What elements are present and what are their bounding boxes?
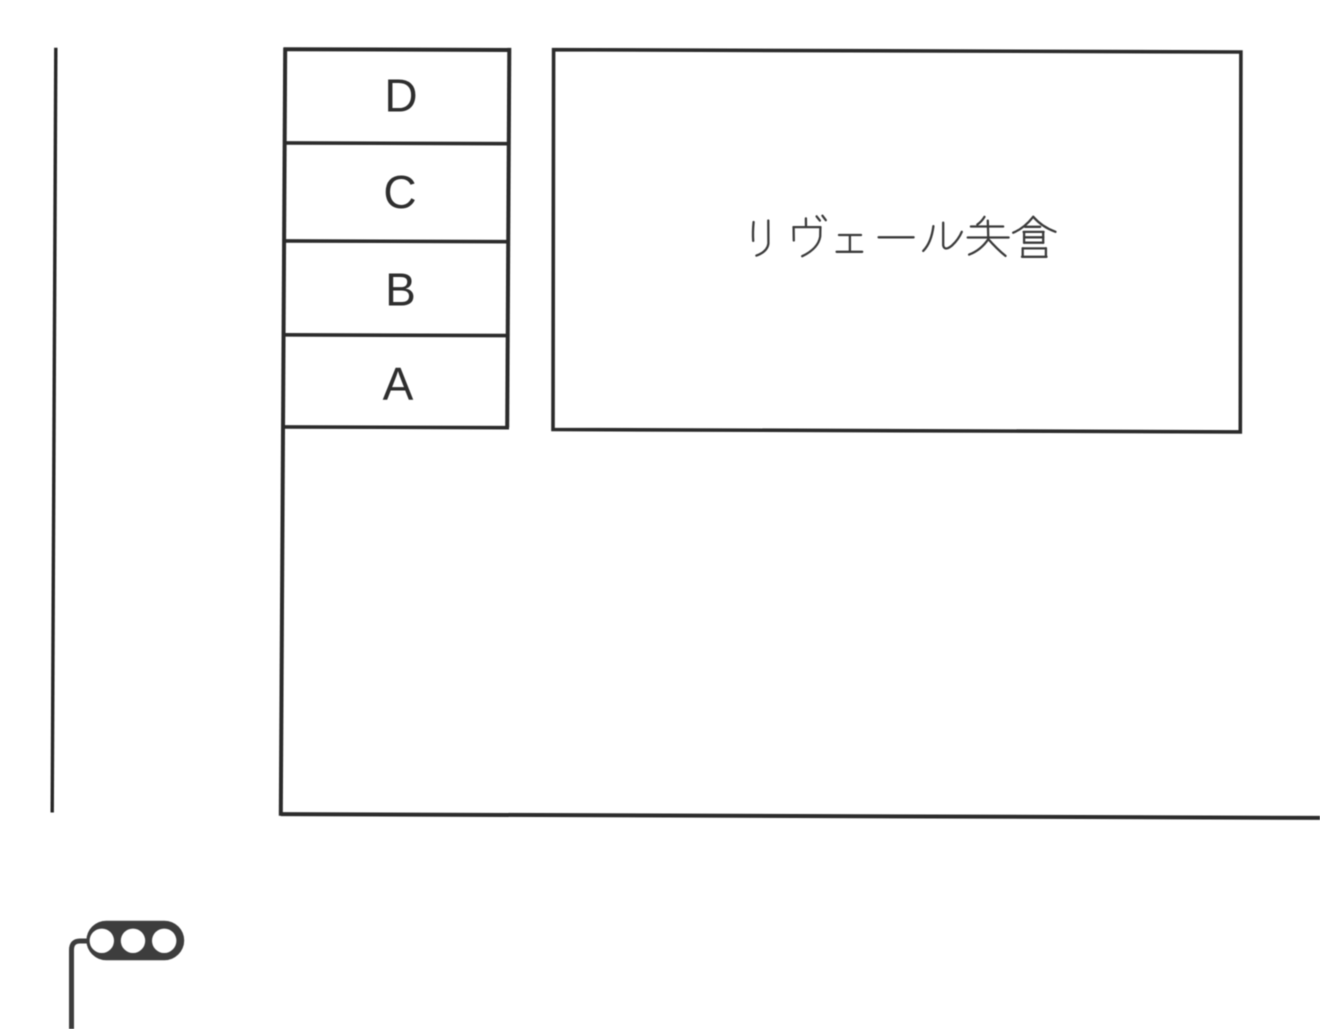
svg-text:C: C [383,166,416,218]
svg-text:A: A [383,358,414,410]
svg-text:D: D [384,70,417,122]
svg-text:B: B [385,264,416,316]
